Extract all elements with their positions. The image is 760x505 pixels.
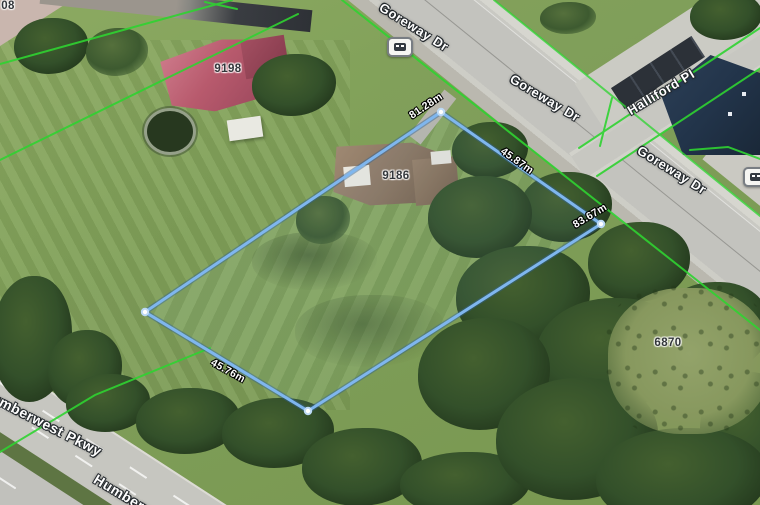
scrub-texture [600, 280, 760, 440]
building-9186-roof-detail [430, 150, 451, 165]
satellite-map-canvas[interactable]: 81.28m 45.87m 83.67m 45.76m Goreway Dr G… [0, 0, 760, 505]
address-label-9198: 9198 [214, 63, 241, 75]
address-label-partial: 08 [1, 0, 15, 12]
roof-skylight [742, 92, 746, 96]
pond [144, 108, 196, 155]
bus-stop-icon[interactable] [387, 37, 413, 57]
bus-stop-icon[interactable] [743, 167, 760, 187]
building-9186-garage [343, 165, 371, 187]
address-label-9186: 9186 [382, 170, 409, 182]
roof-skylight [728, 112, 732, 116]
bus-glyph-icon [394, 43, 406, 51]
tree-cluster [540, 2, 596, 34]
bus-glyph-icon [750, 173, 760, 181]
address-label-6870: 6870 [654, 337, 681, 349]
